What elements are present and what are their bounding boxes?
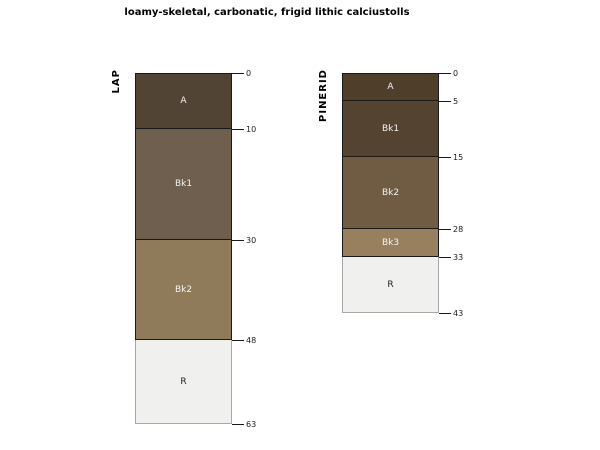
horizon-label: Bk1 xyxy=(382,124,399,134)
depth-tick xyxy=(439,257,451,258)
depth-tick xyxy=(439,101,451,102)
depth-tick-label: 28 xyxy=(453,225,463,234)
depth-tick xyxy=(232,129,244,130)
horizon-rect-bk2: Bk2 xyxy=(135,239,232,340)
depth-tick-label: 33 xyxy=(453,253,463,262)
horizon-label: A xyxy=(180,96,186,106)
horizon-label: R xyxy=(387,280,393,290)
horizon-label: R xyxy=(180,377,186,387)
profile-id-label: LAP xyxy=(111,69,122,93)
horizon-rect-r: R xyxy=(135,339,232,424)
depth-tick xyxy=(439,313,451,314)
horizon-label: Bk1 xyxy=(175,179,192,189)
horizon-rect-r: R xyxy=(342,256,439,313)
depth-tick-label: 0 xyxy=(453,69,458,78)
depth-tick xyxy=(232,240,244,241)
depth-tick xyxy=(232,424,244,425)
depth-tick xyxy=(439,73,451,74)
horizon-rect-bk1: Bk1 xyxy=(135,128,232,240)
depth-tick-label: 43 xyxy=(453,309,463,318)
profile-box: ABk1Bk2Bk3R xyxy=(342,73,439,313)
depth-tick-label: 10 xyxy=(246,125,256,134)
depth-tick-label: 15 xyxy=(453,153,463,162)
horizon-rect-a: A xyxy=(342,73,439,101)
horizon-label: Bk3 xyxy=(382,238,399,248)
depth-tick xyxy=(232,340,244,341)
depth-tick xyxy=(439,229,451,230)
profile-id-label: PINERID xyxy=(318,69,329,122)
depth-tick xyxy=(439,157,451,158)
horizon-label: Bk2 xyxy=(382,188,399,198)
depth-tick-label: 5 xyxy=(453,97,458,106)
depth-tick-label: 0 xyxy=(246,69,251,78)
horizon-label: A xyxy=(387,82,393,92)
horizon-rect-a: A xyxy=(135,73,232,129)
profile-box: ABk1Bk2R xyxy=(135,73,232,424)
horizon-label: Bk2 xyxy=(175,285,192,295)
depth-tick-label: 30 xyxy=(246,236,256,245)
horizon-rect-bk1: Bk1 xyxy=(342,100,439,157)
depth-tick-label: 48 xyxy=(246,336,256,345)
plot-title: loamy-skeletal, carbonatic, frigid lithi… xyxy=(0,7,534,18)
horizon-rect-bk3: Bk3 xyxy=(342,228,439,257)
horizon-rect-bk2: Bk2 xyxy=(342,156,439,229)
depth-tick-label: 63 xyxy=(246,420,256,429)
depth-tick xyxy=(232,73,244,74)
soil-profile-plot: loamy-skeletal, carbonatic, frigid lithi… xyxy=(0,0,600,450)
